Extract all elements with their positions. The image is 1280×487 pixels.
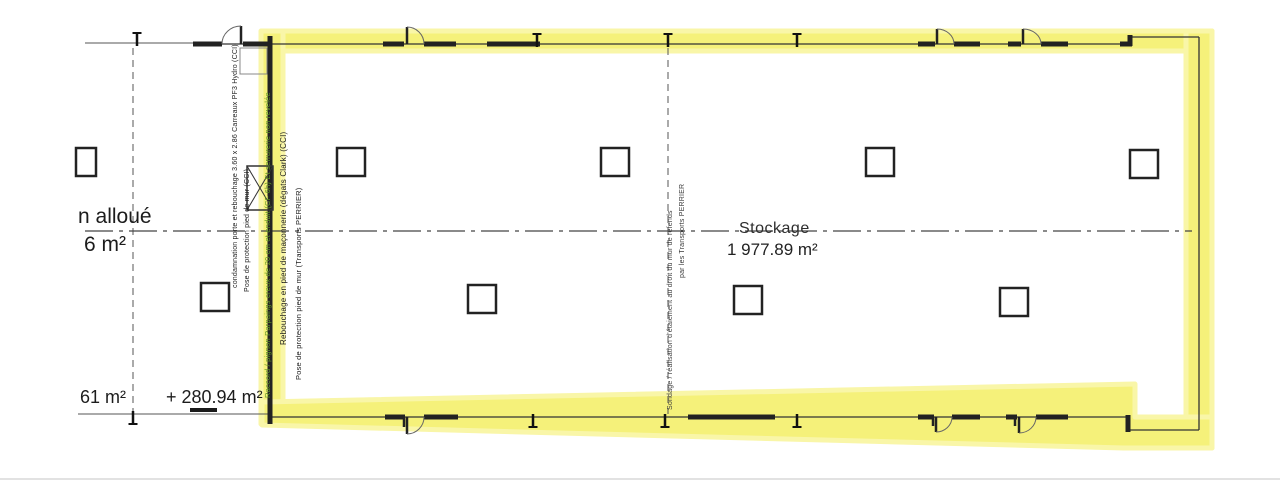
middle-annotation-survey: Sondage / réalisation d'étaiement au dro… (667, 210, 674, 410)
column-symbol (1000, 288, 1028, 316)
grid-lines (78, 43, 668, 414)
middle-annotation-transporter: par les Transports PERRIER (679, 184, 686, 278)
wall-thick-segments (193, 35, 1132, 432)
allocated-zone-label: n alloué (78, 206, 152, 227)
floor-plan-canvas: n alloué 6 m² 61 m² + 280.94 m² Stockage… (0, 0, 1280, 487)
wall-annotation-base-protection-perrier: Pose de protection pied de mur (Transpor… (295, 188, 303, 381)
wall-annotation-masonry-repair: Rebouchage en pied de maçonnerie (dégats… (280, 132, 288, 345)
column-symbol (201, 283, 229, 311)
wall-annotation-gable-blockwork: Raccord / pignon Parpaings creux de 20 c… (264, 92, 272, 398)
column-symbol (734, 286, 762, 314)
column-symbol (76, 148, 96, 176)
column-symbol (1130, 150, 1158, 178)
floor-plan-drawing (0, 0, 1280, 487)
wall-annotation-door-sealing: condamnation porte et rebouchage 3.60 x … (232, 44, 239, 288)
bottom-area-left-label: 61 m² (80, 388, 126, 406)
dimension-underline-mark (190, 408, 217, 412)
wall-thin-lines (193, 37, 1199, 430)
room-name-label: Stockage (739, 221, 810, 237)
column-symbol (337, 148, 365, 176)
room-area-label: 1 977.89 m² (727, 241, 818, 258)
bottom-area-added-label: + 280.94 m² (166, 388, 263, 406)
allocated-zone-area: 6 m² (84, 234, 126, 255)
door-symbols (222, 26, 1041, 434)
highlight-top-wall (262, 31, 1212, 51)
wall-annotation-base-protection: Pose de protection pied de mur (CCI) (244, 169, 251, 292)
column-symbol (601, 148, 629, 176)
column-symbol (468, 285, 496, 313)
column-symbol (866, 148, 894, 176)
